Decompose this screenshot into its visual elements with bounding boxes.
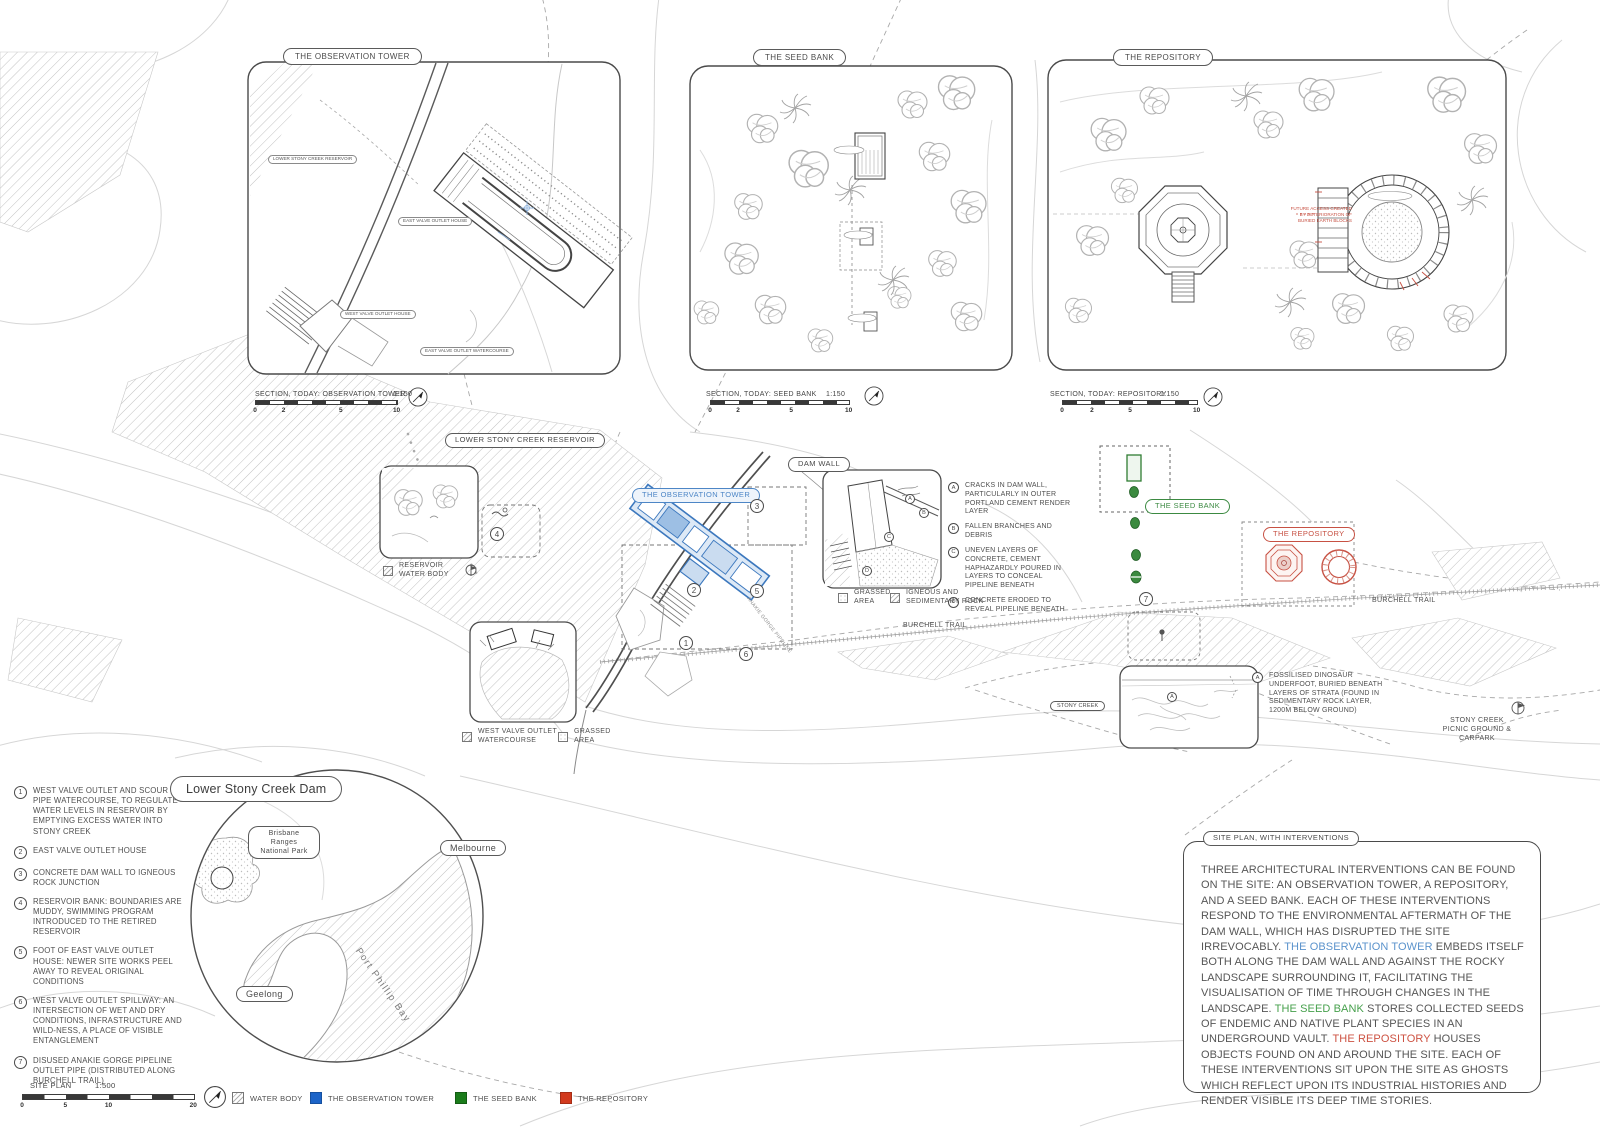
statement-seed-bank-ref: THE SEED BANK [1275,1003,1364,1015]
hatch-swatch-icon [383,566,393,576]
repository-marker-octagon [1266,545,1302,581]
dam-note-b: B FALLEN BRANCHES AND DEBRIS [948,523,1072,541]
section-scale-seed-bank: 1:150 [826,391,845,398]
site-plan-scale-label: SITE PLAN [30,1081,72,1090]
dam-note-c-text: UNEVEN LAYERS OF CONCRETE, CEMENT HAPHAZ… [965,547,1072,591]
legend-reservoir-water-body: RESERVOIR WATER BODY [383,562,457,580]
repository-marker-circle [1322,550,1356,584]
site-marker-6: 6 [739,647,753,661]
panel-title-seed-bank: THE SEED BANK [753,49,846,66]
dam-note-c: C UNEVEN LAYERS OF CONCRETE, CEMENT HAPH… [948,547,1072,591]
legend-igneous-rock: IGNEOUS AND SEDIMENTARY ROCK [890,589,988,607]
site-plan-scale-value: 1:500 [95,1081,116,1090]
statement-repository-ref: THE REPOSITORY [1332,1033,1430,1045]
statement-title: SITE PLAN, WITH INTERVENTIONS [1203,831,1359,846]
statement-tower-ref: THE OBSERVATION TOWER [1284,941,1432,953]
scale-ticks-seed-bank: 0 2 5 10 [710,407,850,416]
label-reservoir: LOWER STONY CREEK RESERVOIR [445,433,605,448]
section-caption-repository: SECTION, TODAY: REPOSITORY [1050,391,1167,398]
stipple-swatch-icon [558,732,568,742]
statement-text-part-1: THREE ARCHITECTURAL INTERVENTIONS CAN BE… [1201,864,1515,953]
scale-bar-observation [255,400,398,405]
legend-seed-bank: THE SEED BANK [455,1092,537,1104]
section-scale-observation: 1:150 [393,391,412,398]
section-caption-observation: SECTION, TODAY: OBSERVATION TOWER [255,391,406,398]
key-note-4: 4 RESERVOIR BANK: BOUNDARIES ARE MUDDY, … [14,897,194,938]
scale-ticks-repository: 0 2 5 10 [1062,407,1198,416]
key-note-2: 2 EAST VALVE OUTLET HOUSE [14,846,194,859]
legend-repository: THE REPOSITORY [560,1092,648,1104]
architectural-drawing-sheet: THE OBSERVATION TOWER THE SEED BANK THE … [0,0,1600,1131]
stipple-swatch-icon [838,593,848,603]
legend-grassed-area-dam: GRASSED AREA [838,589,896,607]
label-burchell-trail-mid: BURCHELL TRAIL [903,622,967,631]
scale-bar-repository [1062,400,1198,405]
hatch-swatch-icon [462,732,472,742]
label-east-valve-house: EAST VALVE OUTLET HOUSE [398,217,472,226]
label-observation-tower: THE OBSERVATION TOWER [632,488,760,503]
locator-map-title: Lower Stony Creek Dam [170,776,342,802]
site-marker-1: 1 [679,636,693,650]
scale-ticks-observation: 0 2 5 10 [255,407,398,416]
section-caption-seed-bank: SECTION, TODAY: SEED BANK [706,391,817,398]
label-reservoir-small: LOWER STONY CREEK RESERVOIR [268,155,357,164]
label-east-valve-watercourse: EAST VALVE OUTLET WATERCOURSE [420,347,514,356]
dam-inset-marker-d: D [862,566,872,576]
legend-grassed-area-west: GRASSED AREA [558,728,620,746]
key-note-6: 6 WEST VALVE OUTLET SPILLWAY: AN INTERSE… [14,996,194,1047]
key-note-1: 1 WEST VALVE OUTLET AND SCOUR PIPE WATER… [14,786,194,837]
label-burchell-trail-right: BURCHELL TRAIL [1372,597,1436,606]
scale-bar-seed-bank [710,400,850,405]
label-picnic-ground: STONY CREEK PICNIC GROUND & CARPARK [1437,717,1517,743]
site-scale-bar [22,1094,195,1100]
dam-note-a-text: CRACKS IN DAM WALL, PARTICULARLY IN OUTE… [965,482,1072,517]
site-marker-3: 3 [750,499,764,513]
dam-inset-marker-a: A [905,494,915,504]
repository-red-note: FUTURE ACCESS CREATED BY DETERIORATION O… [1288,206,1352,224]
key-note-3: 3 CONCRETE DAM WALL TO IGNEOUS ROCK JUNC… [14,868,194,888]
site-marker-5: 5 [750,584,764,598]
fossil-note: A FOSSILISED DINOSAUR UNDERFOOT, BURIED … [1252,672,1392,716]
fossil-note-key: A [1252,672,1263,683]
dam-note-b-key: B [948,523,959,534]
dam-inset-marker-c: C [884,532,894,542]
dam-note-a-key: A [948,482,959,493]
water-body-swatch-icon [232,1092,244,1104]
legend-observation-tower: THE OBSERVATION TOWER [310,1092,434,1104]
label-stony-creek: STONY CREEK [1050,701,1105,711]
site-scale-ticks: 0 5 10 20 [22,1102,195,1111]
label-west-valve-house: WEST VALVE OUTLET HOUSE [340,310,416,319]
site-marker-2: 2 [687,583,701,597]
key-note-5: 5 FOOT OF EAST VALVE OUTLET HOUSE: NEWER… [14,946,194,987]
seed-markers [1130,487,1142,584]
panel-title-observation-tower: THE OBSERVATION TOWER [283,48,422,65]
locator-map [191,770,493,1063]
site-marker-7: 7 [1139,592,1153,606]
tower-swatch-icon [310,1092,322,1104]
label-brisbane-ranges: Brisbane Ranges National Park [248,826,320,859]
statement-paragraph: THREE ARCHITECTURAL INTERVENTIONS CAN BE… [1201,863,1533,1110]
panel-title-repository: THE REPOSITORY [1113,49,1213,66]
site-marker-4: 4 [490,527,504,541]
label-geelong: Geelong [236,986,293,1002]
key-notes-list: 1 WEST VALVE OUTLET AND SCOUR PIPE WATER… [14,786,194,1086]
dam-note-c-key: C [948,547,959,558]
statement-box: THREE ARCHITECTURAL INTERVENTIONS CAN BE… [1183,841,1541,1093]
fossil-note-text: FOSSILISED DINOSAUR UNDERFOOT, BURIED BE… [1269,672,1387,716]
legend-water-body: WATER BODY [232,1092,303,1104]
dam-note-b-text: FALLEN BRANCHES AND DEBRIS [965,523,1072,541]
dam-note-a: A CRACKS IN DAM WALL, PARTICULARLY IN OU… [948,482,1072,517]
seed-bank-swatch-icon [455,1092,467,1104]
dam-inset-marker-b: B [919,508,929,518]
label-repository: THE REPOSITORY [1263,527,1355,542]
label-dam-wall: DAM WALL [788,457,850,472]
label-melbourne: Melbourne [440,840,506,856]
repository-swatch-icon [560,1092,572,1104]
section-scale-repository: 1:150 [1160,391,1179,398]
label-seed-bank: THE SEED BANK [1145,499,1230,514]
hatch-swatch-icon [890,593,900,603]
fossil-inset-marker-a: A [1167,692,1177,702]
legend-west-valve-watercourse: WEST VALVE OUTLET WATERCOURSE [462,728,560,746]
